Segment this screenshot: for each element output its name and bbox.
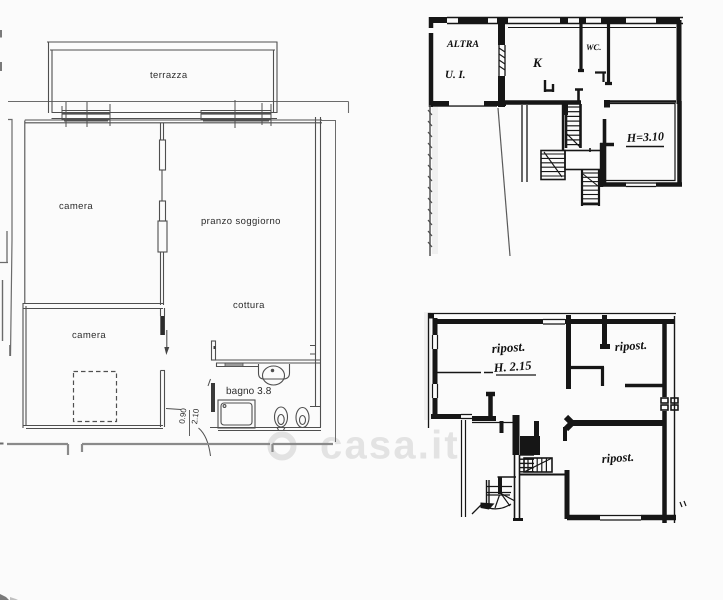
svg-text:K: K [532, 55, 543, 70]
svg-text:casa.it: casa.it [320, 424, 460, 468]
svg-text:cottura: cottura [233, 300, 265, 311]
svg-text:WC.: WC. [586, 42, 601, 52]
svg-text:camera: camera [59, 201, 93, 212]
svg-text:terrazza: terrazza [150, 70, 188, 81]
svg-text:ripost.: ripost. [614, 338, 647, 354]
svg-text:ripost.: ripost. [491, 339, 526, 356]
svg-text:pranzo soggiorno: pranzo soggiorno [201, 216, 281, 227]
svg-text:bagno 3.8: bagno 3.8 [226, 386, 272, 397]
svg-text:H=3.10: H=3.10 [625, 129, 664, 145]
svg-text:U. I.: U. I. [445, 69, 465, 81]
svg-text:ripost.: ripost. [601, 450, 634, 466]
svg-text:ALTRA: ALTRA [446, 39, 479, 50]
svg-text:H. 2.15: H. 2.15 [492, 358, 532, 375]
svg-text:camera: camera [72, 330, 106, 341]
